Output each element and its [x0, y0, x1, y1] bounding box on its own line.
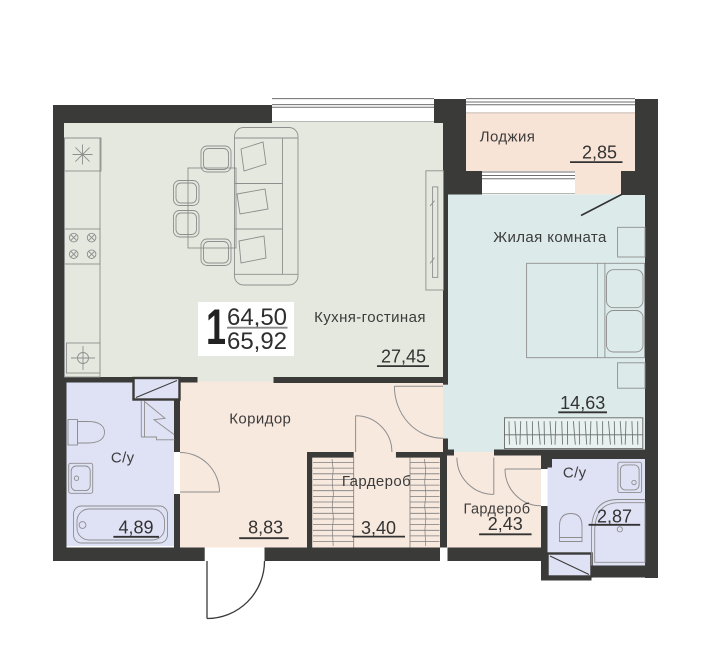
svg-text:3,40: 3,40	[361, 518, 396, 538]
svg-text:Кухня-гостиная: Кухня-гостиная	[314, 309, 426, 326]
svg-text:С/у: С/у	[563, 464, 587, 481]
svg-text:Лоджия: Лоджия	[480, 129, 536, 146]
svg-text:Жилая комната: Жилая комната	[493, 229, 607, 246]
svg-text:2,87: 2,87	[597, 507, 632, 527]
svg-text:65,92: 65,92	[227, 328, 287, 355]
svg-text:8,83: 8,83	[248, 518, 283, 538]
svg-text:Гардероб: Гардероб	[342, 473, 411, 490]
svg-text:С/у: С/у	[111, 450, 135, 467]
svg-text:27,45: 27,45	[381, 347, 426, 367]
svg-text:1: 1	[206, 300, 226, 355]
svg-text:2,43: 2,43	[488, 514, 523, 534]
svg-text:14,63: 14,63	[560, 393, 605, 413]
svg-text:2,85: 2,85	[582, 143, 617, 163]
svg-text:Коридор: Коридор	[229, 411, 291, 428]
svg-text:4,89: 4,89	[118, 518, 153, 538]
